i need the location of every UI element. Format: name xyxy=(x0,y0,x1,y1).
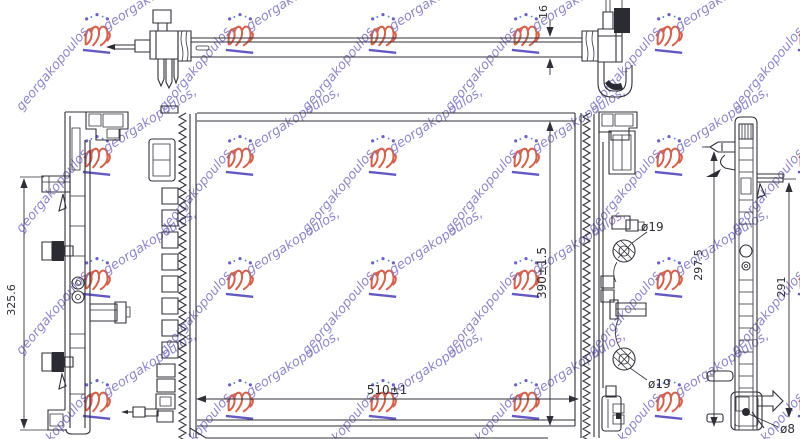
dim-pipe-thickness-label: 16 xyxy=(537,5,550,19)
dim-right-bracket-lower-height-label: 291 xyxy=(775,277,788,298)
radiator-spec-drawing-canvas: georgakopoulos,georgakopoulos,georgakopo… xyxy=(0,0,800,439)
side-tab xyxy=(162,254,178,270)
side-tab xyxy=(162,320,178,336)
dim-left-bracket-height-label: 325.6 xyxy=(5,284,18,316)
side-tab xyxy=(162,210,178,226)
radiator-side-profile-view: ø19 ø19 xyxy=(599,112,671,431)
left-bracket-side-view: 325.6 xyxy=(5,112,130,434)
side-tab xyxy=(162,188,178,204)
side-tab xyxy=(162,276,178,292)
dim-right-bracket-total-height-label: 297.5 xyxy=(692,249,705,281)
dim-bottom-pipe-diameter-label: ø19 xyxy=(648,377,671,391)
dim-core-height-label: 390±1.5 xyxy=(535,247,549,299)
radiator-technical-drawing: 16 xyxy=(0,0,800,439)
dim-core-width-label: 510±1 xyxy=(367,383,408,397)
dim-top-pipe-diameter-label: ø19 xyxy=(641,220,664,234)
side-tab xyxy=(162,232,178,248)
dim-drain-hole-diameter-label: ø8 xyxy=(780,422,795,436)
right-bracket-profile-view: ø8 297.5 291 xyxy=(692,117,796,436)
radiator-front-view: 510±1 390±1.5 xyxy=(121,106,599,439)
side-tab xyxy=(162,342,178,358)
top-pipe-view: 16 xyxy=(106,0,632,97)
side-tab xyxy=(162,298,178,314)
